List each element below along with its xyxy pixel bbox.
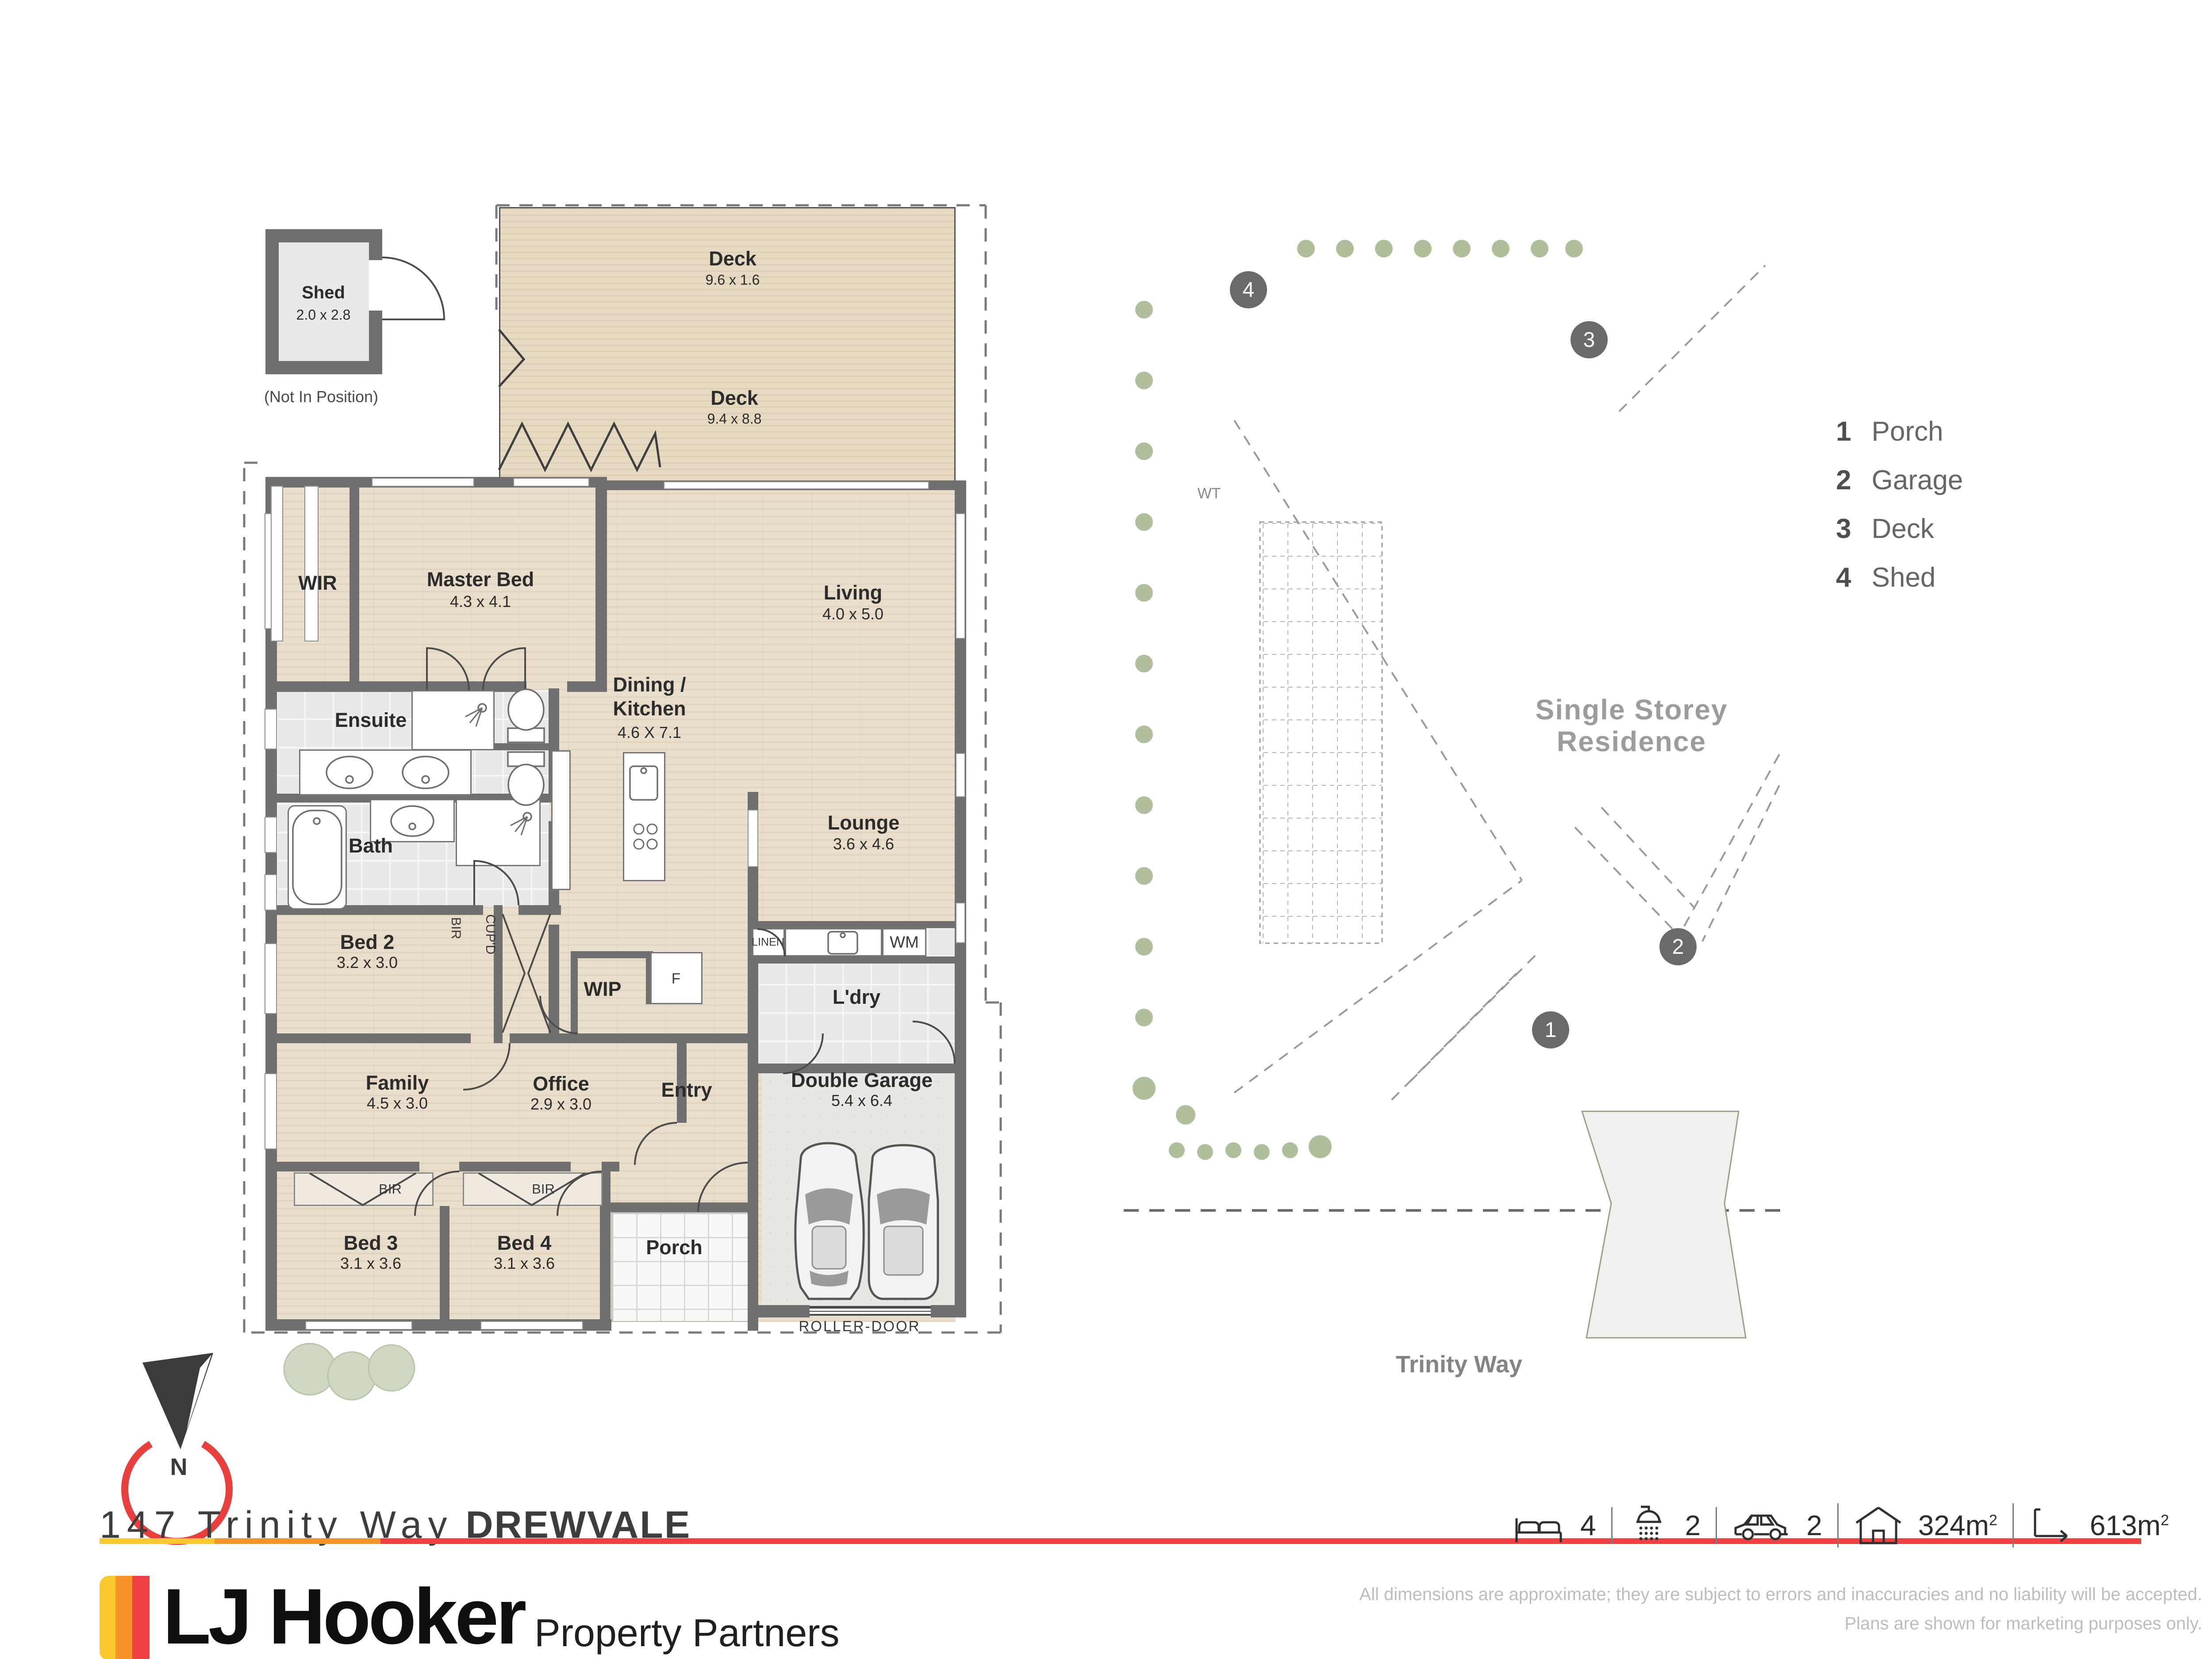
ensuite-shower — [411, 690, 495, 750]
room-label-entry: Entry — [661, 1079, 712, 1102]
ensuite-vanity — [299, 749, 472, 795]
room-label-deck-top: Deck — [709, 247, 757, 270]
room-label-bed3: Bed 3 — [344, 1232, 398, 1255]
stat-divider — [1611, 1507, 1613, 1544]
room-label-garage: Double Garage — [791, 1069, 933, 1092]
stat-divider — [1716, 1507, 1717, 1544]
wir-shelf — [271, 486, 283, 641]
site-porch — [1469, 1110, 1585, 1145]
site-legend: 1 Porch 2 Garage 3 Deck 4 Shed — [1836, 416, 2084, 611]
site-verge-top — [1124, 1211, 1790, 1260]
shower-icon — [1628, 1505, 1670, 1546]
marker-deck: 3 — [1571, 321, 1608, 358]
label-wm: WM — [890, 933, 919, 952]
room-label-bath: Bath — [349, 834, 393, 857]
disclaimer-line1: All dimensions are approximate; they are… — [1359, 1585, 2202, 1605]
room-label-dining2: Kitchen — [613, 697, 686, 720]
brand-name: LJ Hooker — [163, 1577, 524, 1656]
label-fridge: F — [672, 970, 680, 987]
room-label-ldry: L'dry — [833, 986, 880, 1009]
logo-stripe-orange — [115, 1576, 132, 1659]
label-bir-bed3: BIR — [379, 1181, 402, 1197]
stat-floor-area: 324m2 — [1918, 1509, 1997, 1542]
floorplan-page: 4 3 2 1 Single Storey Residence WT Trini… — [0, 0, 2212, 1659]
brand-tagline: Property Partners — [534, 1610, 840, 1655]
label-roller-door: ROLLER-DOOR — [799, 1318, 920, 1335]
street-label: Trinity Way — [1396, 1351, 1522, 1378]
roller-door — [810, 1306, 931, 1316]
laundry-counter — [785, 928, 882, 956]
wir-shelf — [304, 486, 319, 641]
room-label-shed: Shed — [302, 283, 345, 303]
room-label-wip: WIP — [584, 978, 622, 1001]
brand-stripe-orange — [215, 1538, 380, 1544]
kitchen-counter — [551, 750, 571, 890]
ljhooker-logo-mark — [100, 1576, 150, 1659]
room-label-master: Master Bed — [427, 568, 534, 591]
residence-title-line1: Single Storey — [1536, 693, 1728, 726]
property-stats: 4 2 2 324m2 613m2 — [1512, 1502, 2169, 1548]
house-area-icon — [1854, 1505, 1903, 1546]
stat-land-area: 613m2 — [2090, 1509, 2169, 1542]
site-garage — [1619, 815, 1783, 1068]
room-label-lounge: Lounge — [828, 811, 899, 834]
logo-stripe-yellow — [100, 1576, 115, 1659]
room-label-office: Office — [533, 1072, 589, 1095]
legend-row: 4 Shed — [1836, 562, 1935, 593]
label-linen: LINEN — [752, 936, 784, 949]
shed-note: (Not In Position) — [264, 388, 378, 406]
legend-row: 1 Porch — [1836, 416, 1943, 447]
kitchen-island — [623, 752, 665, 881]
land-area-icon — [2029, 1505, 2075, 1546]
marker-garage: 2 — [1659, 928, 1697, 965]
stat-divider — [2012, 1503, 2014, 1548]
room-label-family: Family — [366, 1071, 429, 1094]
bath-shower — [456, 799, 541, 866]
room-label-wir: WIR — [298, 572, 337, 595]
water-tank-label: WT — [1198, 485, 1221, 503]
brand-stripe-yellow — [100, 1538, 215, 1544]
stat-cars: 2 — [1806, 1509, 1822, 1542]
legend-row: 2 Garage — [1836, 465, 1963, 496]
label-cupd: CUP'D — [483, 914, 498, 955]
room-label-living: Living — [824, 581, 883, 604]
compass-north-label: N — [170, 1453, 188, 1481]
logo-stripe-red — [132, 1576, 150, 1659]
room-label-ensuite: Ensuite — [335, 709, 407, 732]
stat-baths: 2 — [1685, 1509, 1701, 1542]
marker-porch: 1 — [1532, 1011, 1569, 1048]
site-footpath — [1124, 1260, 1790, 1296]
residence-title-line2: Residence — [1557, 725, 1706, 758]
marker-shed: 4 — [1230, 271, 1267, 308]
room-label-bed2: Bed 2 — [340, 931, 395, 954]
disclaimer-line2: Plans are shown for marketing purposes o… — [1844, 1614, 2202, 1634]
legend-row: 3 Deck — [1836, 513, 1934, 545]
room-label-bed4: Bed 4 — [497, 1232, 552, 1255]
bed-icon — [1512, 1505, 1565, 1546]
bed3-robe — [294, 1172, 434, 1206]
room-label-dining1: Dining / — [613, 673, 686, 696]
porch-floor — [611, 1212, 749, 1322]
car-icon — [1732, 1505, 1791, 1546]
label-bir: BIR — [448, 917, 463, 939]
site-residence-main — [1224, 407, 1619, 1110]
sliding-door — [664, 481, 929, 489]
stat-divider — [1837, 1503, 1839, 1548]
room-label-deck-main: Deck — [710, 387, 758, 410]
room-label-porch: Porch — [646, 1236, 703, 1259]
label-bir-bed4: BIR — [532, 1181, 555, 1197]
bathtub — [288, 805, 347, 910]
stat-beds: 4 — [1580, 1509, 1596, 1542]
site-verge-bottom — [1124, 1296, 1790, 1339]
